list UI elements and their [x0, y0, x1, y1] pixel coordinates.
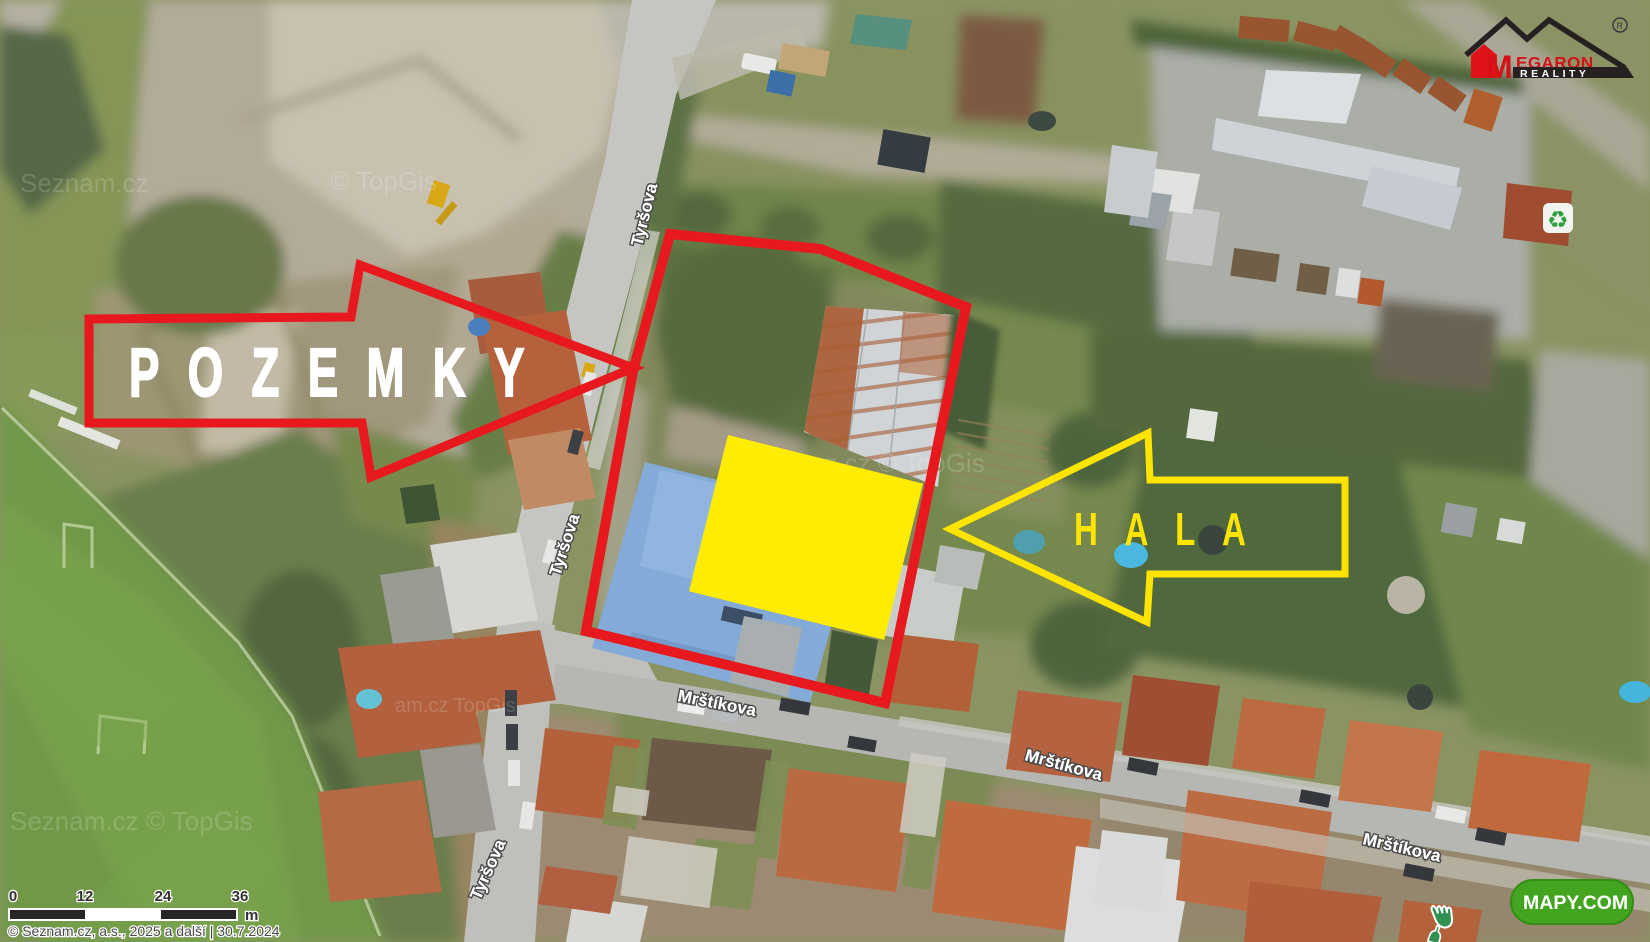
svg-text:POZEMKY: POZEMKY: [129, 335, 553, 412]
svg-text:12: 12: [77, 888, 94, 905]
svg-text:M: M: [1486, 49, 1513, 85]
svg-text:Seznam.cz © TopGis: Seznam.cz © TopGis: [10, 806, 253, 836]
svg-text:R: R: [1617, 21, 1624, 31]
svg-text:0: 0: [9, 888, 17, 905]
svg-text:© TopGis: © TopGis: [330, 166, 437, 196]
svg-text:MAPY.COM: MAPY.COM: [1523, 892, 1628, 914]
svg-text:© Seznam.cz, a.s., 2025 a dalš: © Seznam.cz, a.s., 2025 a další | 30.7.2…: [8, 923, 280, 939]
svg-text:♻: ♻: [1547, 207, 1569, 234]
svg-text:REALITY: REALITY: [1520, 68, 1589, 80]
svg-text:36: 36: [232, 888, 249, 905]
svg-text:am.cz TopGis: am.cz TopGis: [395, 695, 516, 717]
svg-text:m: m: [245, 907, 258, 924]
svg-text:HALA: HALA: [1074, 505, 1273, 555]
svg-text:24: 24: [155, 888, 172, 905]
svg-text:Seznam.cz: Seznam.cz: [20, 168, 149, 198]
